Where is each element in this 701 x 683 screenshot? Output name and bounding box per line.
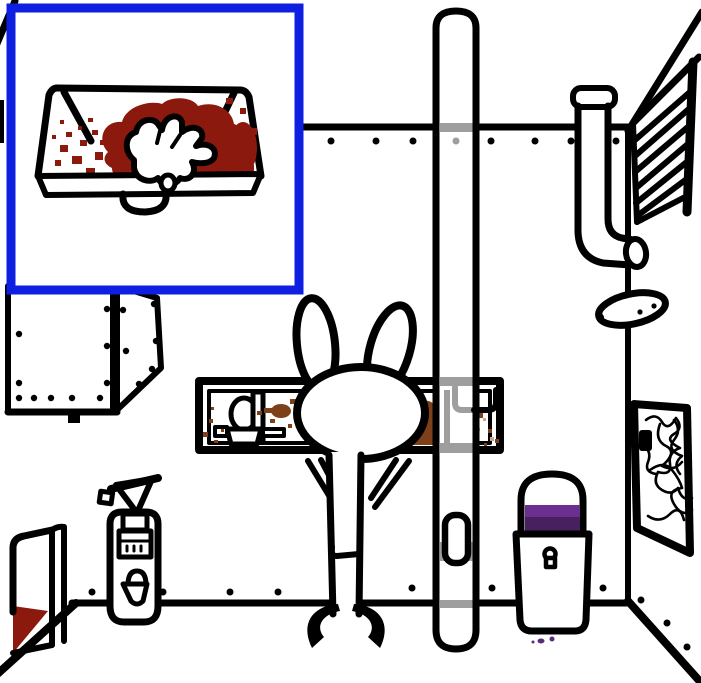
keyhole-icon <box>545 549 556 568</box>
glove-drip <box>161 175 175 191</box>
extinguisher-cap <box>123 514 147 530</box>
purple-liquid-light <box>525 505 580 517</box>
rabbit-body-left <box>329 455 333 614</box>
extinguisher-label <box>119 531 151 557</box>
vent-right-rail <box>687 62 693 212</box>
trash-can[interactable] <box>516 474 589 644</box>
game-scene <box>0 0 701 683</box>
wall-seam-left <box>0 100 4 143</box>
fountain-basin <box>227 429 261 444</box>
picture-frame[interactable] <box>634 404 690 553</box>
pipe-open-end[interactable] <box>624 238 648 269</box>
hatch-tab[interactable] <box>68 412 80 423</box>
extinguisher-nub <box>99 491 112 504</box>
pipe-latch[interactable] <box>445 515 468 563</box>
inset-closeup[interactable] <box>11 8 299 290</box>
rabbit-head[interactable] <box>297 367 425 459</box>
rabbit-body-right <box>359 455 361 614</box>
scribble-picture[interactable] <box>634 404 692 553</box>
